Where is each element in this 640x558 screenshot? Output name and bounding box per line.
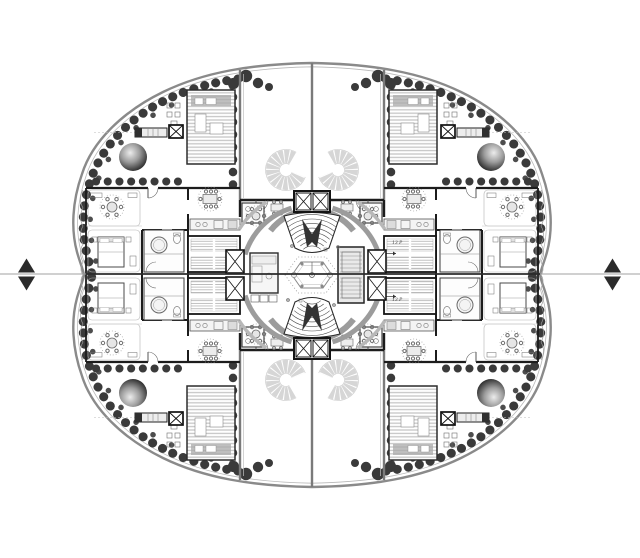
elevator-lobby-east <box>338 247 364 303</box>
core-annotation: 13 P <box>392 240 403 246</box>
floor-plan-canvas: 13 P 13 P <box>0 0 640 558</box>
core-annotation: 13 P <box>392 297 403 303</box>
floor-plan: 13 P 13 P <box>0 0 640 558</box>
